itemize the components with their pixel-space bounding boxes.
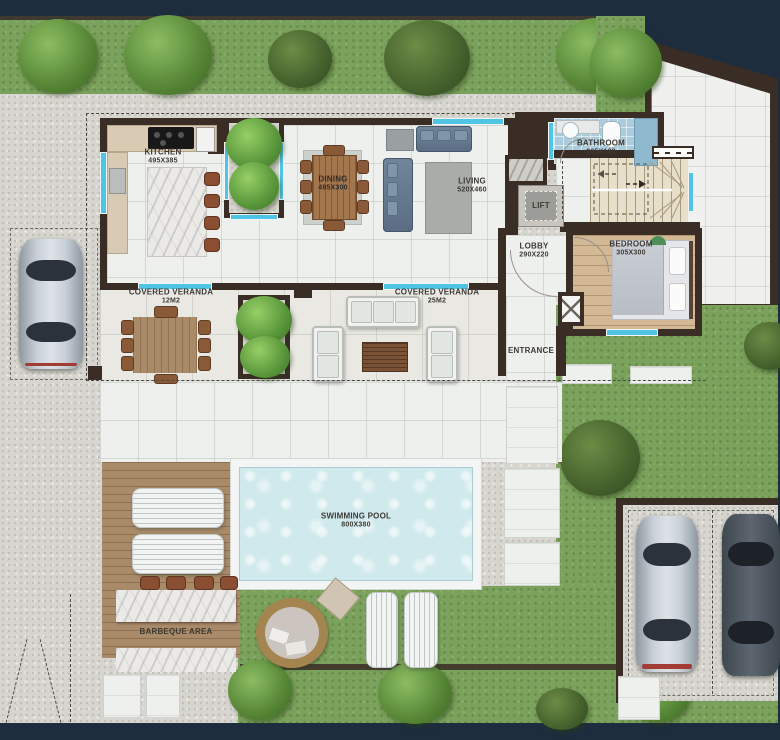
island-stool <box>204 238 220 252</box>
outdoor-chair <box>154 306 178 318</box>
tree-icon <box>18 19 98 93</box>
stair-dash-divider <box>562 161 563 219</box>
dining-chair <box>300 180 312 194</box>
bar-stool <box>220 576 238 590</box>
parking-wall-top <box>616 498 778 505</box>
parking-wall-left <box>616 498 623 703</box>
tree-icon <box>560 420 640 496</box>
lift-label: LIFT <box>532 201 550 211</box>
sink-icon <box>562 122 579 139</box>
dining-chair <box>300 200 312 214</box>
island-stool <box>204 194 220 208</box>
path-slab <box>506 386 558 464</box>
barbeque-counter <box>116 590 236 622</box>
tree-icon <box>240 336 290 378</box>
fridge-icon <box>196 127 215 152</box>
outdoor-sofa <box>426 326 458 382</box>
living-label: LIVING 520X460 <box>457 177 486 196</box>
bathroom-label: BATHROOM 295X120 <box>577 139 625 158</box>
tree-icon <box>536 688 588 730</box>
sun-lounger <box>366 592 398 668</box>
patio-tiles <box>100 382 562 462</box>
bar-stool <box>194 576 214 590</box>
setback-line-west <box>86 113 87 381</box>
tree-icon <box>229 162 279 210</box>
tree-icon <box>124 15 212 95</box>
outdoor-chair <box>198 320 211 335</box>
deck-lounger <box>132 534 224 574</box>
path-slab <box>630 366 692 384</box>
kitchen-sink-icon <box>109 168 126 194</box>
outdoor-sofa <box>312 326 344 382</box>
staircase-detail <box>590 158 688 222</box>
tree-icon <box>384 20 470 96</box>
entrance-label: ENTRANCE <box>508 346 554 356</box>
living-sectional-sofa <box>383 158 413 232</box>
wall-block <box>505 183 518 235</box>
bar-stool <box>140 576 160 590</box>
driveway-marking <box>70 594 71 722</box>
path-slab <box>562 364 612 384</box>
bedroom-window <box>606 329 658 336</box>
barbeque-label: BARBEQUE AREA <box>140 627 213 637</box>
wall-block <box>515 112 548 158</box>
dining-chair <box>300 160 312 174</box>
lobby-label: LOBBY 290X220 <box>519 242 548 261</box>
entrance-porch <box>506 296 556 380</box>
bar-stool <box>166 576 186 590</box>
tree-icon <box>268 30 332 88</box>
stair-window <box>688 172 694 212</box>
outdoor-chair <box>121 356 134 371</box>
living-window <box>432 118 504 125</box>
kitchen-window <box>100 152 107 214</box>
parked-car-silver <box>636 516 698 672</box>
path-slab <box>504 542 560 586</box>
kitchen-island <box>148 168 206 256</box>
courtyard-window <box>230 214 278 220</box>
outdoor-chair <box>121 320 134 335</box>
outdoor-chair <box>154 374 178 384</box>
outdoor-dining-table <box>133 317 197 373</box>
dining-chair <box>357 200 369 214</box>
island-stool <box>204 172 220 186</box>
dining-label: DINING 495X300 <box>318 175 347 194</box>
island-stool <box>204 216 220 230</box>
dining-chair <box>323 220 345 231</box>
duct-shaft-x <box>558 292 584 326</box>
dining-chair <box>357 180 369 194</box>
vent-window <box>652 146 694 159</box>
wall-block <box>498 228 506 376</box>
living-rug <box>425 162 472 234</box>
outdoor-chair <box>198 356 211 371</box>
parked-car-driveway <box>19 239 83 369</box>
path-slab <box>146 674 180 718</box>
outdoor-chair <box>121 338 134 353</box>
barbeque-counter-low <box>116 648 236 672</box>
tv-cabinet <box>386 129 414 151</box>
dining-chair <box>357 160 369 174</box>
path-slab <box>103 674 141 718</box>
sun-lounger <box>404 592 438 668</box>
kitchen-label: KITCHEN 495X385 <box>145 148 182 167</box>
tree-icon <box>378 662 452 724</box>
dining-chair <box>323 145 345 156</box>
bathroom-window <box>548 122 554 160</box>
veranda-left-label: COVERED VERANDA 12M2 <box>129 288 213 307</box>
boundary-fence-top <box>0 16 648 20</box>
wall-block <box>556 326 566 376</box>
round-daybed <box>256 598 328 668</box>
path-slab <box>504 468 560 538</box>
tree-icon <box>228 660 292 720</box>
setback-line-south <box>86 380 706 381</box>
coffee-table <box>362 342 408 372</box>
deck-lounger <box>132 488 224 528</box>
parked-car-dark <box>722 514 780 676</box>
outdoor-chair <box>198 338 211 353</box>
path-slab <box>618 676 660 720</box>
pool-label: SWIMMING POOL 800X380 <box>321 512 391 531</box>
bedroom-label: BEDROOM 305X300 <box>609 240 652 259</box>
stove-icon <box>148 127 194 149</box>
floorplan-canvas: KITCHEN 495X385 DINING 495X300 LIVING 52… <box>0 0 780 740</box>
parking-bay-divider <box>712 510 713 694</box>
daybed-pillow <box>284 639 308 657</box>
living-sofa <box>416 126 472 152</box>
veranda-pillar <box>88 366 102 380</box>
tree-icon <box>590 28 662 98</box>
service-shaft <box>505 155 547 185</box>
veranda-right-label: COVERED VERANDA 25M2 <box>395 288 479 307</box>
